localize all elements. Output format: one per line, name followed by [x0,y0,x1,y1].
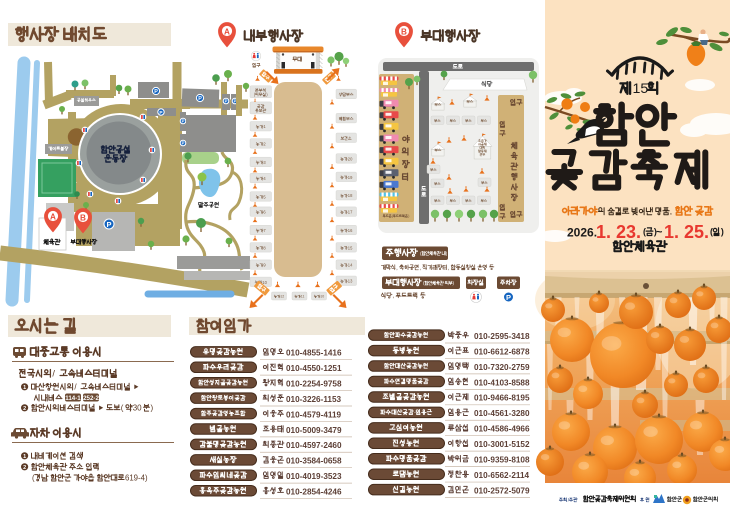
svg-text:): ) [408,214,409,218]
svg-text:2: 2 [23,465,26,471]
svg-text:010-4579-4119: 010-4579-4119 [286,410,342,419]
svg-text:010-6562-2114: 010-6562-2114 [474,471,530,480]
svg-text:2: 2 [23,406,26,412]
svg-text:/: / [74,383,77,392]
svg-text:,: , [392,293,394,300]
svg-text:010-4550-1251: 010-4550-1251 [286,364,342,373]
svg-text:1: 1 [23,454,26,460]
svg-text:(: ( [710,227,713,237]
svg-text:010-3001-5152: 010-3001-5152 [474,440,530,449]
svg-text:010-4019-3523: 010-4019-3523 [286,472,342,481]
svg-text:15: 15 [633,81,649,97]
svg-text:010-2854-4246: 010-2854-4246 [286,487,342,496]
svg-text:1. 23.: 1. 23. [596,222,641,242]
svg-text:B: B [401,28,407,37]
svg-text:10: 10 [320,295,324,299]
svg-text:A: A [224,28,230,37]
svg-text:14: 14 [348,263,353,268]
svg-text:619-4): 619-4) [125,473,148,482]
svg-text:19: 19 [348,175,353,180]
svg-text:010-5009-3479: 010-5009-3479 [286,426,342,435]
svg-text:010-6612-6878: 010-6612-6878 [474,347,530,356]
svg-text:13: 13 [348,279,353,284]
svg-text:010-3226-1153: 010-3226-1153 [286,395,342,404]
svg-text:010-9466-8195: 010-9466-8195 [474,394,530,403]
svg-text:010-4103-8588: 010-4103-8588 [474,378,530,387]
svg-text:1. 25.: 1. 25. [664,222,709,242]
svg-text:010-4597-2460: 010-4597-2460 [286,441,342,450]
svg-text:010-3584-0658: 010-3584-0658 [286,457,342,466]
svg-text:): ) [151,404,154,413]
svg-text:010-2572-5079: 010-2572-5079 [474,486,530,495]
svg-text:010-9359-8108: 010-9359-8108 [474,456,530,465]
svg-text:010-4855-1416: 010-4855-1416 [286,349,342,358]
svg-text:(: ( [643,227,646,237]
svg-text:P: P [198,96,202,102]
svg-text:P: P [182,119,185,124]
svg-text:010-2595-3418: 010-2595-3418 [474,332,530,341]
svg-text:B: B [80,214,86,223]
svg-text:16: 16 [348,228,353,233]
svg-text:/: / [52,369,55,379]
svg-text:17: 17 [348,210,353,215]
svg-text:010-4586-4966: 010-4586-4966 [474,425,530,434]
svg-text:15: 15 [348,245,353,250]
svg-text:P: P [106,220,111,229]
svg-text:30: 30 [133,404,142,413]
svg-text:010-4561-3280: 010-4561-3280 [474,409,530,418]
svg-text:10: 10 [262,280,267,285]
svg-text:11: 11 [301,295,305,299]
svg-text:,: , [419,265,421,271]
svg-text:114-1: 114-1 [65,395,81,402]
svg-text:P: P [225,99,228,104]
svg-text:P: P [154,89,158,95]
svg-text:010-7320-2759: 010-7320-2759 [474,363,530,372]
svg-text:1: 1 [23,385,26,391]
svg-text:252-2: 252-2 [83,395,99,402]
svg-text:~: ~ [656,227,663,239]
svg-text:,: , [670,206,672,216]
svg-text:-: - [414,410,416,416]
svg-text:,: , [448,265,450,271]
svg-text:010-2254-9758: 010-2254-9758 [286,379,342,388]
svg-text:P: P [506,293,511,302]
svg-text:(: ( [32,473,35,482]
svg-text:12: 12 [280,295,284,299]
svg-text:(: ( [121,404,124,413]
svg-text:,: , [396,265,398,271]
svg-text:A: A [50,213,56,222]
svg-text:18: 18 [348,193,353,198]
svg-text:2026.: 2026. [567,226,597,240]
svg-text:20: 20 [348,156,353,161]
svg-text:): ) [721,227,724,237]
svg-text:P: P [182,141,185,146]
